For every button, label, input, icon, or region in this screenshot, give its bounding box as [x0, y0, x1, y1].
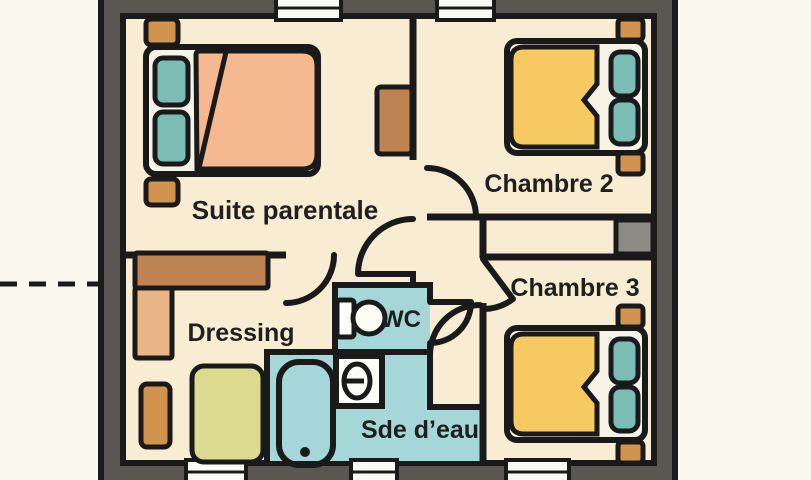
nightstand-icon — [618, 153, 643, 174]
window-top-2 — [437, 0, 494, 20]
pillow-icon — [155, 112, 188, 164]
bed-chambre-3 — [507, 306, 645, 463]
duvet — [511, 47, 597, 147]
wardrobe-icon — [135, 288, 172, 358]
nightstand-icon — [618, 19, 643, 40]
shelf-cabinet-icon — [141, 384, 170, 447]
console-cabinet — [377, 87, 412, 154]
toilet-icon — [337, 300, 385, 337]
room-label-sde-eau: Sde d’eau — [361, 416, 479, 444]
nightstand-icon — [146, 179, 178, 205]
nightstand-icon — [618, 306, 643, 327]
wardrobe-icon — [135, 253, 268, 288]
pillow-icon — [611, 339, 638, 383]
nightstand-icon — [618, 442, 643, 463]
pillow-icon — [611, 100, 638, 144]
pillow-icon — [611, 52, 638, 96]
window-bottom-3 — [506, 460, 569, 480]
sink-icon — [336, 356, 382, 406]
bathtub-drain — [300, 447, 310, 457]
nightstand-icon — [146, 19, 178, 45]
room-label-wc: WC — [381, 306, 421, 333]
pillow-icon — [611, 387, 638, 431]
room-label-dressing: Dressing — [188, 319, 295, 347]
room-label-suite-parentale: Suite parentale — [192, 195, 378, 225]
room-label-chambre-2: Chambre 2 — [484, 170, 613, 198]
floor-plan-canvas: Suite parentale Chambre 2 Chambre 3 Dres… — [0, 0, 811, 480]
duvet — [511, 334, 597, 434]
closet-block — [616, 220, 653, 254]
room-label-chambre-3: Chambre 3 — [510, 274, 639, 302]
window-top-1 — [276, 0, 341, 20]
rug-icon — [192, 366, 263, 462]
window-bottom-2 — [351, 460, 397, 480]
bed-chambre-2 — [507, 19, 645, 174]
pillow-icon — [155, 58, 188, 105]
